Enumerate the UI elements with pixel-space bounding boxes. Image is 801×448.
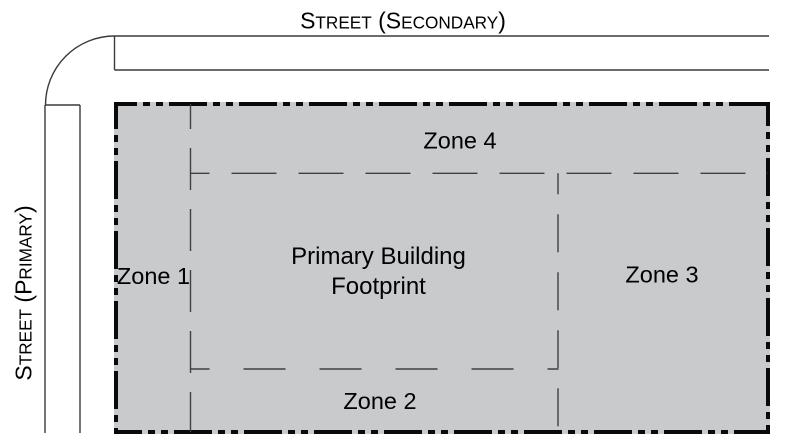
svg-text:Primary Building: Primary Building xyxy=(291,243,466,270)
svg-text:Zone 4: Zone 4 xyxy=(423,128,496,154)
svg-text:Zone 1: Zone 1 xyxy=(117,263,190,289)
svg-text:Zone 3: Zone 3 xyxy=(625,262,698,288)
svg-text:Zone 2: Zone 2 xyxy=(343,388,416,414)
svg-text:Footprint: Footprint xyxy=(331,273,426,300)
